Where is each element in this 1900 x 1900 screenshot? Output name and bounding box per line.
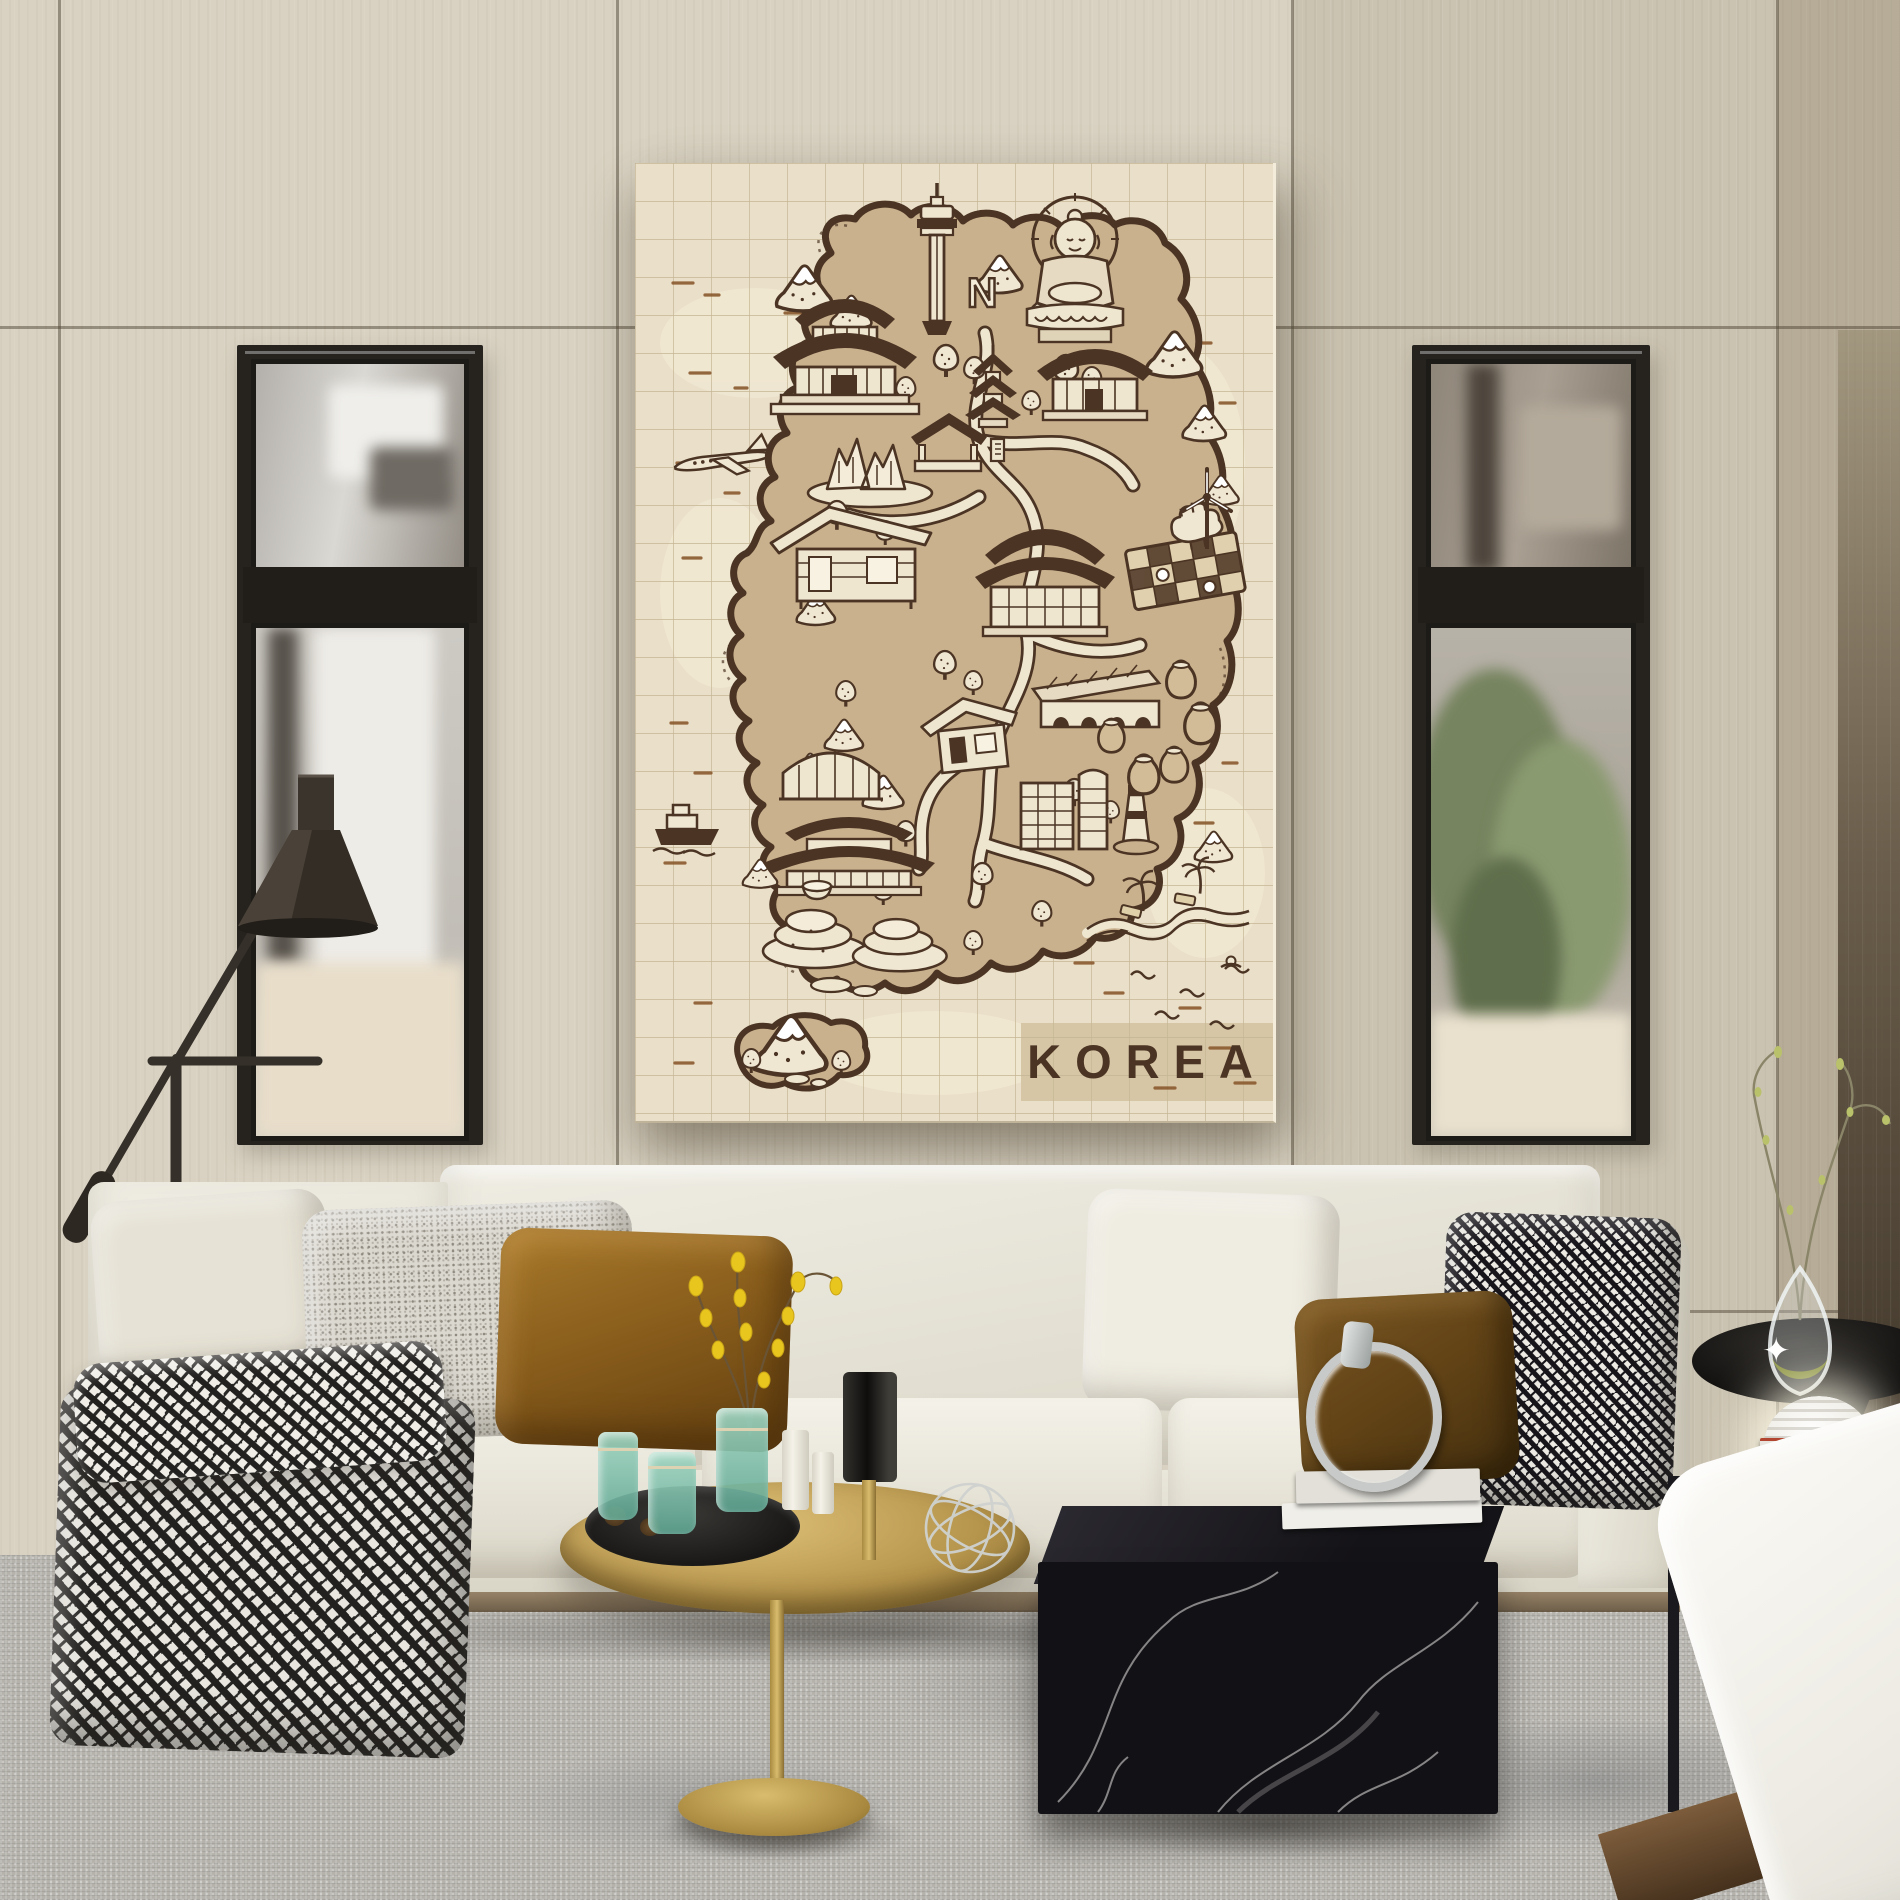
blurred-brick <box>1521 406 1621 531</box>
tower-letter: N <box>967 269 997 316</box>
branches <box>1754 1050 1890 1320</box>
marble-cube-table <box>1038 1562 1498 1814</box>
white-candle-holder <box>812 1452 834 1514</box>
white-candle-holder <box>782 1430 809 1510</box>
lamp-shade <box>238 776 378 938</box>
window-right-main-glass <box>1426 623 1636 1141</box>
black-cylinder-vase <box>843 1372 897 1482</box>
silver-ring-sculpture <box>1306 1342 1442 1492</box>
marble-veins <box>1038 1562 1498 1814</box>
modern-buildings-icon <box>1021 770 1107 849</box>
ring-sculpture-ornament <box>1340 1321 1375 1370</box>
window-frame-highlight <box>1420 351 1642 354</box>
glass-vase-with-branches: ✦ <box>1700 1020 1900 1440</box>
sparkle-icon: ✦ <box>1762 1332 1791 1370</box>
blurred-roof <box>370 447 453 509</box>
blurred-pipe <box>1467 364 1499 572</box>
wire-sphere-ornament <box>920 1478 1020 1578</box>
poster-title: KOREA <box>1027 1035 1267 1088</box>
window-right-divider <box>1418 567 1644 623</box>
lamp-counter-arm <box>98 1058 176 1192</box>
twine-wrap <box>598 1448 638 1451</box>
teal-vase-with-flowers <box>716 1408 768 1512</box>
window-left-divider <box>243 567 477 623</box>
teal-glass-jar <box>648 1452 696 1534</box>
window-right-transom-glass <box>1426 359 1636 577</box>
rice-bowl-icon <box>803 881 831 899</box>
living-room-photo: N <box>0 0 1900 1900</box>
window-frame-highlight <box>245 351 475 354</box>
teal-glass-jar <box>598 1432 638 1520</box>
blurred-sill-wall <box>1431 1014 1631 1136</box>
vase-gold-stem <box>862 1480 876 1560</box>
korea-map-art: N <box>635 163 1273 1121</box>
korea-map-canvas: N <box>635 163 1276 1123</box>
great-buddha-icon <box>1027 193 1123 342</box>
window-right <box>1412 345 1650 1145</box>
twine-wrap <box>648 1466 696 1469</box>
twine-wrap <box>716 1428 768 1431</box>
gold-table-base <box>678 1778 870 1836</box>
gold-table-stem <box>770 1600 784 1796</box>
window-left-transom-glass <box>251 359 469 577</box>
